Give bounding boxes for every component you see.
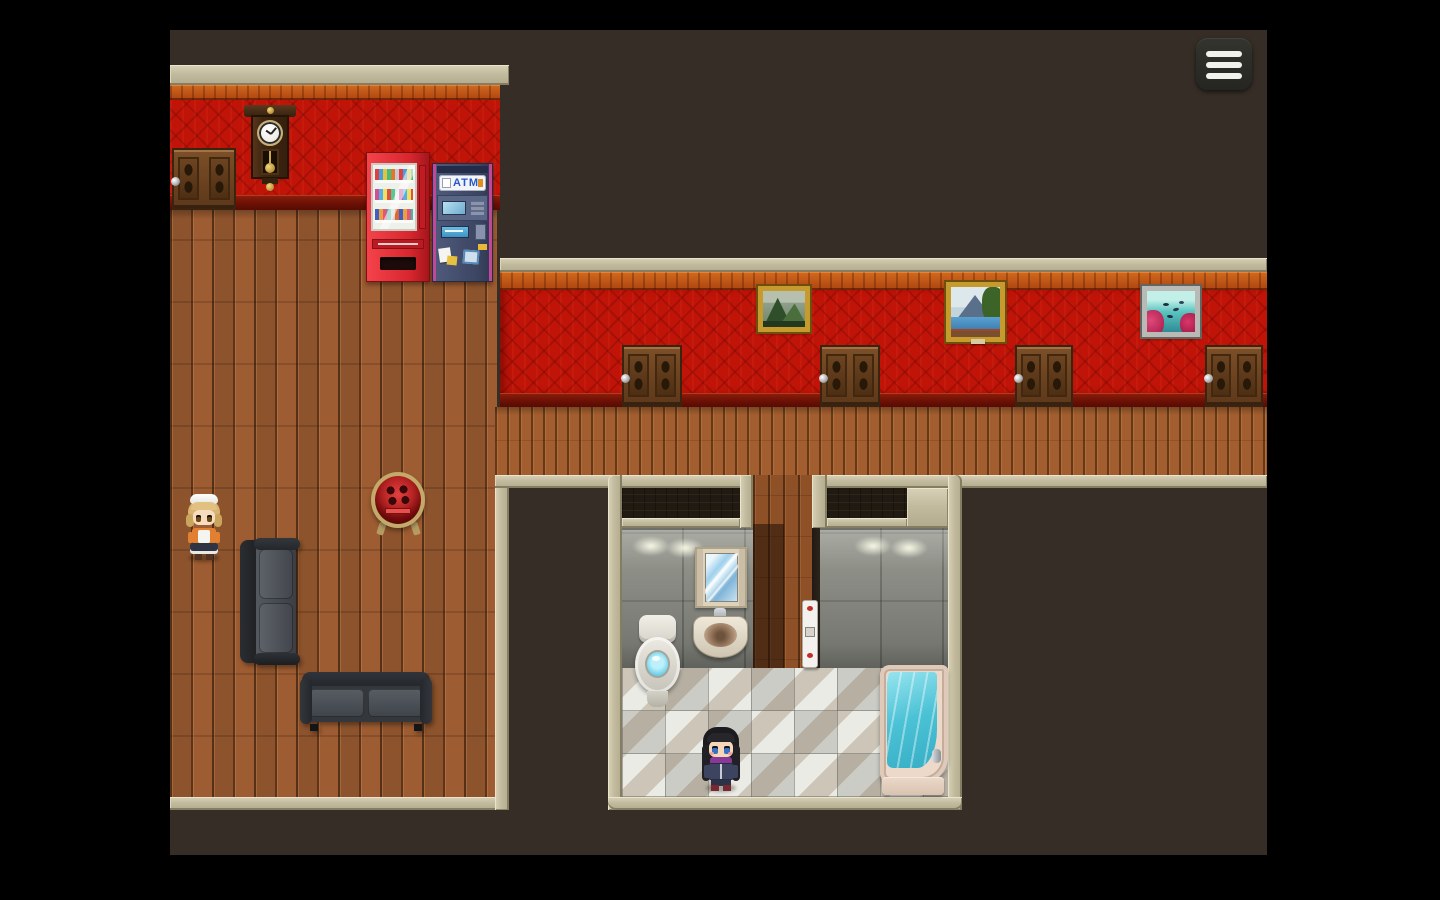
vending-flap-bar [372, 239, 424, 249]
lobby-trim-right [495, 475, 509, 810]
player-outfit [708, 763, 734, 780]
bathtub-shell [880, 665, 948, 783]
atm-small-label [478, 244, 487, 250]
sofa-cushion [259, 603, 293, 653]
corridor-door-4[interactable] [1205, 345, 1263, 407]
maid-face [193, 510, 215, 525]
bathtub-faucet [932, 749, 941, 763]
bathtub [880, 665, 948, 797]
door-panel [853, 354, 873, 397]
heater-vents [375, 476, 421, 524]
player-bangs [707, 733, 735, 742]
ceiling-light-glow [854, 536, 892, 556]
bathroom-walltop-right-post [812, 475, 827, 528]
character-shadow [189, 554, 219, 562]
ceiling-light-glow [632, 536, 670, 556]
sofa-cushion [309, 689, 364, 717]
bathroom-trim-right [948, 475, 962, 810]
painting-fish [1167, 315, 1173, 319]
mountain-painting [758, 286, 810, 332]
sofa-cushion [259, 549, 293, 599]
game-viewport: ATM [170, 30, 1267, 855]
sofa-leg [414, 724, 422, 731]
sofa-horizontal [300, 672, 432, 732]
aquarium-painting [1142, 286, 1200, 337]
sofa-armrest [254, 538, 300, 550]
bathroom-trim-left [608, 475, 622, 810]
bathtub-step [882, 777, 944, 795]
door-knob [1204, 374, 1213, 383]
player-character[interactable] [702, 725, 740, 792]
corridor-wall-floor-shadow [495, 407, 1267, 415]
sink [693, 608, 748, 660]
player-blush [710, 752, 714, 755]
vending-machine[interactable] [366, 152, 430, 282]
corridor-door-3[interactable] [1015, 345, 1073, 407]
maid-apron [198, 530, 210, 543]
lobby-wall-trim-top [170, 65, 509, 85]
maid-bangs [191, 502, 217, 510]
vending-glass-shine [373, 165, 415, 229]
door-knob [171, 177, 180, 186]
toilet-base [647, 691, 668, 707]
player-arm [704, 765, 710, 778]
painting-scene [951, 287, 1000, 337]
toilet-water-glint [652, 656, 660, 661]
corridor-wall-trim-top [500, 258, 1267, 272]
atm-lower-screen [441, 226, 469, 238]
maid-arm [215, 532, 220, 543]
atm-receipt-slot [475, 224, 486, 240]
clock-finial [266, 183, 274, 191]
maid-arm [188, 532, 193, 543]
painting-coral [1180, 313, 1195, 332]
door-panel [628, 354, 648, 397]
bathtub-water [887, 672, 937, 768]
sofa-armrest [254, 653, 300, 665]
lobby-door-west[interactable] [172, 148, 236, 210]
sofa-armrest [420, 678, 432, 724]
menu-bar [1206, 51, 1242, 57]
vending-flap-line [378, 243, 418, 245]
maid-eye [207, 515, 212, 522]
toilet-bowl [635, 637, 680, 693]
vending-display-window [371, 163, 417, 231]
maid-shoe [195, 554, 202, 560]
shower-panel [802, 600, 818, 668]
door-panel [826, 354, 846, 397]
painting-scene [1147, 291, 1195, 332]
heater-body [371, 472, 425, 528]
player-arm [732, 765, 738, 778]
corridor-baseboard [500, 393, 1267, 407]
corridor-trim-bottom-left [495, 475, 753, 488]
atm-screen [442, 201, 466, 215]
lobby-wall-orange-band [170, 85, 500, 100]
painting-shore [951, 329, 1000, 337]
vending-button-column [419, 165, 426, 229]
painting-fish [1179, 301, 1184, 304]
atm-sign: ATM [439, 175, 486, 191]
door-panel [1211, 354, 1230, 397]
mirror-cabinet [695, 547, 747, 608]
atm-sign-ornament [478, 179, 483, 187]
toilet [635, 615, 680, 712]
door-knob [819, 374, 828, 383]
sofa-seat [306, 686, 426, 722]
bathroom-walltop-right-fill [907, 488, 948, 528]
painting-foreground [763, 321, 805, 327]
lake-painting [946, 282, 1005, 342]
bathroom-wall-right [820, 528, 948, 668]
atm-card-icon [442, 178, 451, 188]
atm-keypad [471, 201, 484, 215]
maid-skirt [190, 543, 218, 554]
player-shoe [711, 785, 719, 791]
clock-face [257, 120, 283, 146]
bathroom-walltop-right-sill [827, 518, 907, 528]
corridor-trim-bottom-right [812, 475, 1267, 488]
mirror-glass [705, 553, 738, 602]
bathroom-walltop-left-sill [622, 518, 740, 528]
player-shoe [723, 785, 731, 791]
clock-crown-ornament [267, 107, 274, 114]
door-panel [1047, 354, 1066, 397]
clock-pendulum-window [261, 149, 279, 175]
corridor-floor [495, 407, 1267, 475]
painting-scene [763, 291, 805, 327]
player-blush [728, 752, 732, 755]
menu-button[interactable] [1196, 38, 1252, 90]
atm-blue-card [463, 249, 480, 264]
sofa-armrest [300, 678, 312, 724]
door-panel [1237, 354, 1256, 397]
painting-fish [1173, 307, 1179, 311]
atm-top-band [437, 166, 488, 173]
maid-hair-side [214, 514, 222, 527]
player-face [709, 741, 733, 757]
door-panel [655, 354, 675, 397]
maid-eye [196, 515, 201, 522]
atm-sign-label: ATM [453, 177, 479, 189]
door-knob [621, 374, 630, 383]
atm-machine[interactable]: ATM [432, 163, 493, 282]
corridor-door-2[interactable] [820, 345, 880, 407]
player-outfit-placket [720, 764, 722, 779]
mirror-shine [705, 553, 738, 602]
menu-bar [1206, 73, 1242, 79]
game-screen: ATM [0, 0, 1440, 900]
clock-pendulum-rod [269, 151, 271, 165]
maid-dress-top [192, 528, 216, 544]
painting-tree [982, 287, 1000, 321]
atm-screen-panel [437, 195, 488, 221]
shower-panel-box [805, 627, 815, 637]
vending-dispense-slot [380, 257, 416, 270]
painting-plaque [971, 339, 985, 344]
lobby-trim-bottom [170, 797, 509, 810]
menu-bar [1206, 62, 1242, 68]
sofa-seat [256, 546, 296, 657]
toilet-water [645, 650, 670, 678]
sink-basin [693, 616, 748, 658]
painting-coral [1147, 310, 1164, 332]
atm-lower-screen-line [445, 230, 463, 232]
heater-handle [385, 508, 411, 514]
bathtub-water-waves [887, 672, 937, 768]
maid-shoe [206, 554, 213, 560]
shower-panel-dot [807, 653, 813, 658]
round-heater [370, 470, 427, 538]
shower-panel-dot [807, 606, 813, 611]
wall-clock [247, 105, 293, 190]
sink-bowl [704, 623, 737, 647]
corridor-door-1[interactable] [622, 345, 682, 407]
sofa-cushion [368, 689, 423, 717]
door-panel [209, 157, 231, 200]
bathroom-walltop-left [622, 488, 740, 518]
door-panel [1021, 354, 1040, 397]
bathroom-walltop-left-post [740, 475, 753, 528]
bathroom-trim-bottom [608, 797, 962, 810]
atm-yellow-note [447, 256, 458, 266]
door-knob [1014, 374, 1023, 383]
sofa-vertical [240, 538, 300, 665]
painting-fish [1163, 303, 1169, 306]
sofa-leg [310, 724, 318, 731]
door-panel [178, 157, 200, 200]
ceiling-light-glow [890, 538, 928, 558]
bathroom-walltop-right [827, 488, 907, 518]
maid-npc[interactable] [186, 494, 222, 562]
clock-hour-hand [266, 130, 272, 135]
